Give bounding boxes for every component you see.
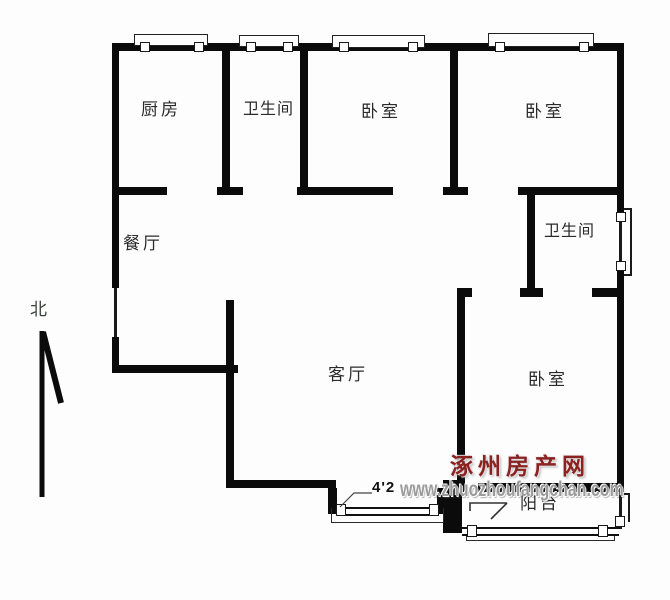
floor-plan: 厨房 卫生间 卧室 卧室 餐厅 卫生间 客厅 卧室 阳台 北 4'2 涿州房产网… [0, 0, 670, 600]
watermark-site-name: 涿州房产网 [450, 453, 590, 479]
room-label-bedroom-bottom: 卧室 [528, 371, 568, 388]
dimension-leader-line [340, 493, 372, 507]
dimension-label: 4'2 [372, 480, 395, 495]
north-arrow-barb [43, 332, 61, 403]
room-label-dining: 餐厅 [123, 235, 163, 252]
room-label-bedroom-top-right: 卧室 [525, 103, 565, 120]
watermark-site-url: www.zhuozhoufangchan.com [400, 478, 624, 502]
balcony-door-frame [470, 503, 507, 511]
room-label-kitchen: 厨房 [141, 101, 181, 118]
room-label-bedroom-top-left: 卧室 [361, 103, 401, 120]
annotation-layer [0, 0, 670, 600]
north-label: 北 [30, 301, 47, 318]
room-label-living: 客厅 [328, 366, 368, 383]
balcony-door-swing [491, 503, 507, 519]
room-label-bathroom-top: 卫生间 [243, 102, 294, 118]
room-label-bathroom-right: 卫生间 [544, 224, 595, 240]
